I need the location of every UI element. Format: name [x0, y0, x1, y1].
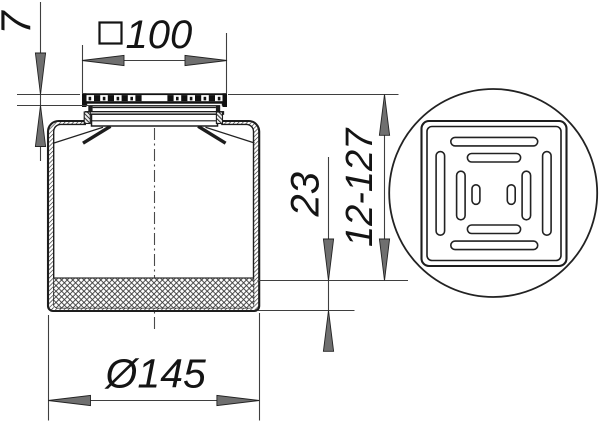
- svg-text:7: 7: [0, 10, 39, 35]
- svg-text:12-127: 12-127: [339, 127, 381, 247]
- svg-text:100: 100: [126, 13, 193, 57]
- svg-text:23: 23: [284, 172, 328, 218]
- svg-text:Ø145: Ø145: [104, 351, 206, 397]
